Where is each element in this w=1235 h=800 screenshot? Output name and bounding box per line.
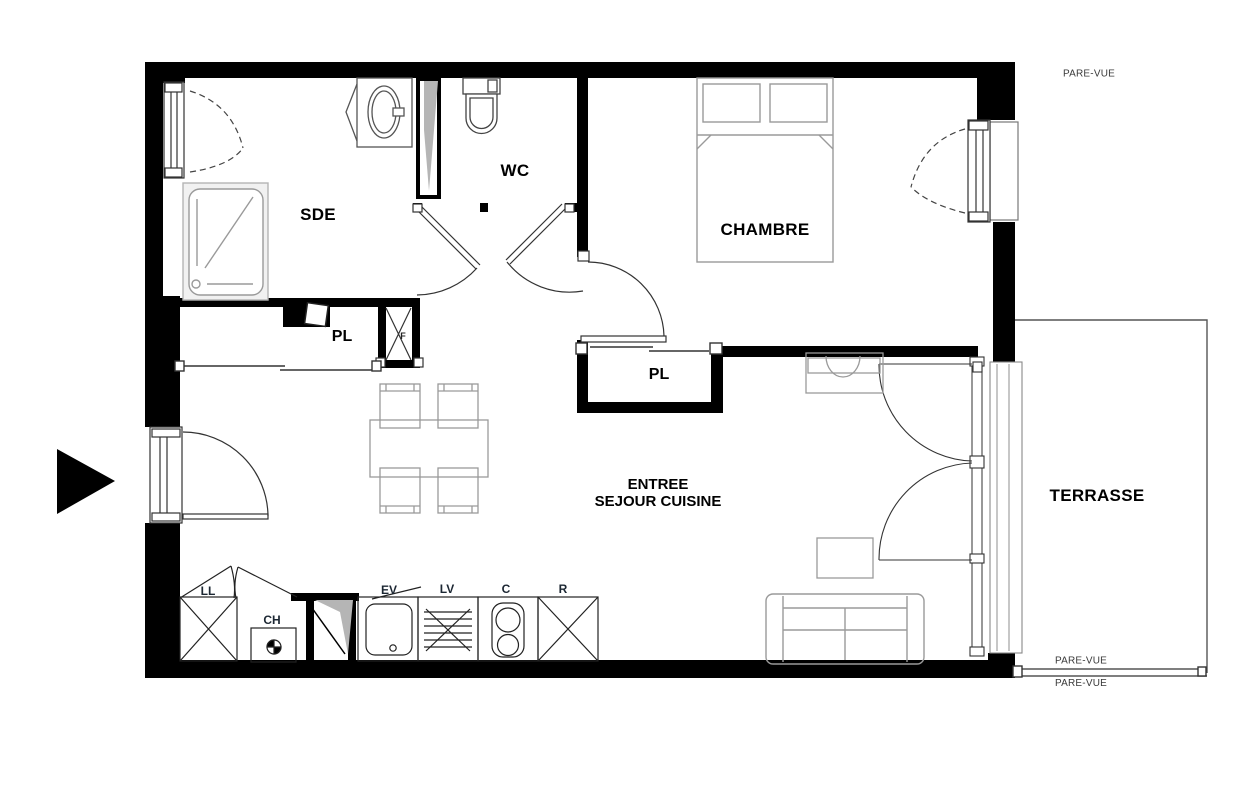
pare-vue-label-bottom-clipped: PARE-VUE [1055,678,1107,686]
french-doors-terrace [879,364,972,560]
dining-table [370,384,488,513]
kitchen-units [180,566,598,662]
appliance-label-water-heater: CH [263,613,280,627]
door-chambre [578,251,666,342]
duct-closet-hatch [305,303,329,327]
appliance-label-washing-machine: LL [201,584,216,598]
closet2-sliding-doors [576,343,722,354]
room-label-living-line1: ENTREE [595,476,722,493]
duct-label: F [400,331,406,341]
desk-and-chair [806,353,883,393]
entrance-door [150,427,268,523]
washbasin [346,78,412,147]
room-label-living: ENTREE SEJOUR CUISINE [595,476,722,510]
window-sde [164,82,243,178]
pare-vue-label-top: PARE-VUE [1063,69,1115,80]
coffee-table [817,538,873,578]
room-label-terrace: TERRASSE [1050,486,1145,506]
pare-vue-label-bottom-clipped-text: PARE-VUE [1055,678,1107,686]
floorplan: SDE WC CHAMBRE PL PL ENTREE SEJOUR CUISI… [0,0,1235,800]
door-sde [413,204,480,295]
bay-window-terrace [970,357,1022,656]
closet1-sliding-doors [175,361,381,371]
kitchen-dark-closet [291,593,359,660]
door-wc [506,204,583,292]
room-label-living-line2: SEJOUR CUISINE [595,493,722,510]
sofa [766,594,924,664]
room-label-wc: WC [501,161,530,181]
entrance-arrow-icon [57,449,115,514]
room-label-chambre: CHAMBRE [721,220,810,240]
window-chambre [911,120,1018,222]
room-label-closet1: PL [332,328,352,346]
appliance-label-cooktop: C [502,582,511,596]
appliance-label-sink: EV [381,583,397,597]
room-label-sde: SDE [300,205,336,225]
toilet [463,78,500,133]
appliance-label-dishwasher: LV [440,582,454,596]
room-label-closet2: PL [649,366,669,384]
pare-vue-label-bottom: PARE-VUE [1055,656,1107,667]
duct-sde-wc [418,79,439,197]
shower [183,183,268,300]
floorplan-drawing [0,0,1235,800]
appliance-label-fridge: R [559,582,568,596]
